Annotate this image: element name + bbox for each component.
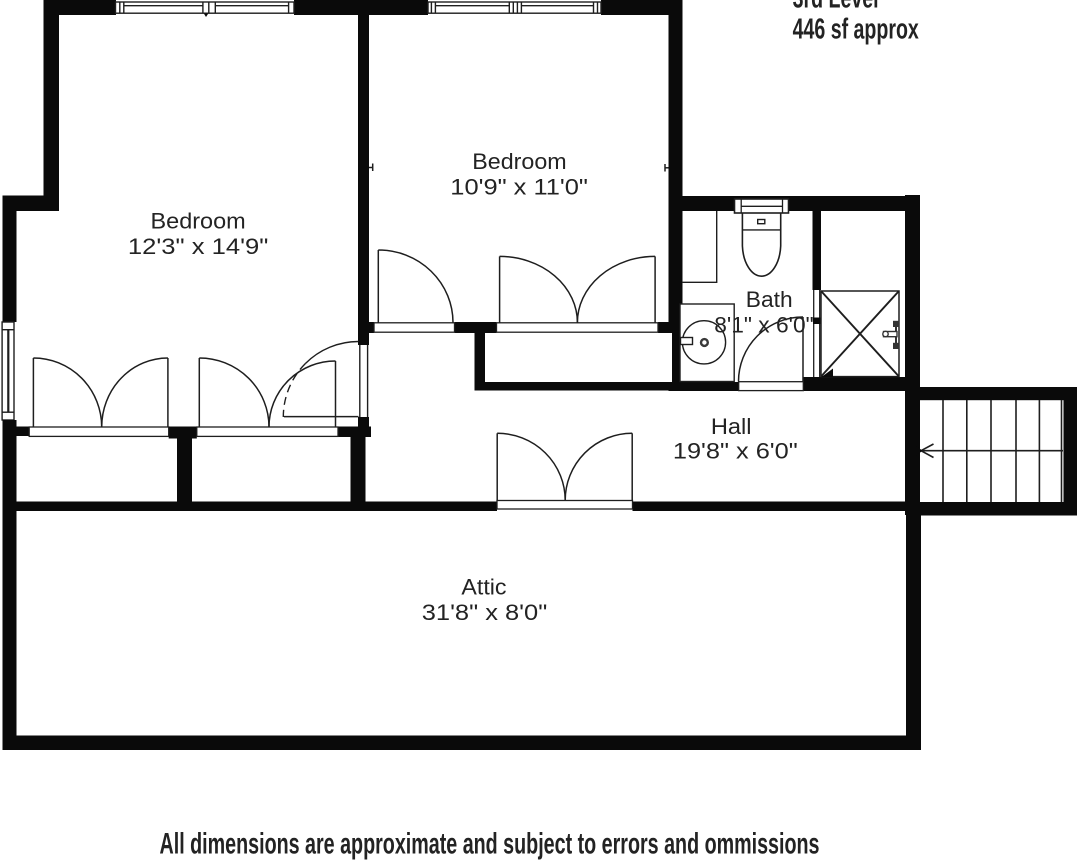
svg-text:8'1" x 6'0": 8'1" x 6'0" (714, 313, 814, 338)
svg-text:Bedroom: Bedroom (151, 209, 246, 234)
svg-text:Hall: Hall (711, 414, 752, 439)
svg-text:446 sf approx: 446 sf approx (793, 13, 919, 45)
svg-text:3rd Level: 3rd Level (793, 0, 879, 15)
svg-text:12'3" x 14'9": 12'3" x 14'9" (128, 234, 268, 259)
svg-text:10'9" x 11'0": 10'9" x 11'0" (450, 175, 588, 200)
svg-text:19'8" x 6'0": 19'8" x 6'0" (673, 438, 798, 463)
svg-text:31'8" x 8'0": 31'8" x 8'0" (422, 600, 548, 625)
svg-text:Attic: Attic (461, 575, 506, 600)
svg-text:Bedroom: Bedroom (472, 149, 566, 174)
svg-text:All dimensions are approximate: All dimensions are approximate and subje… (160, 827, 820, 860)
svg-text:Bath: Bath (746, 287, 793, 312)
